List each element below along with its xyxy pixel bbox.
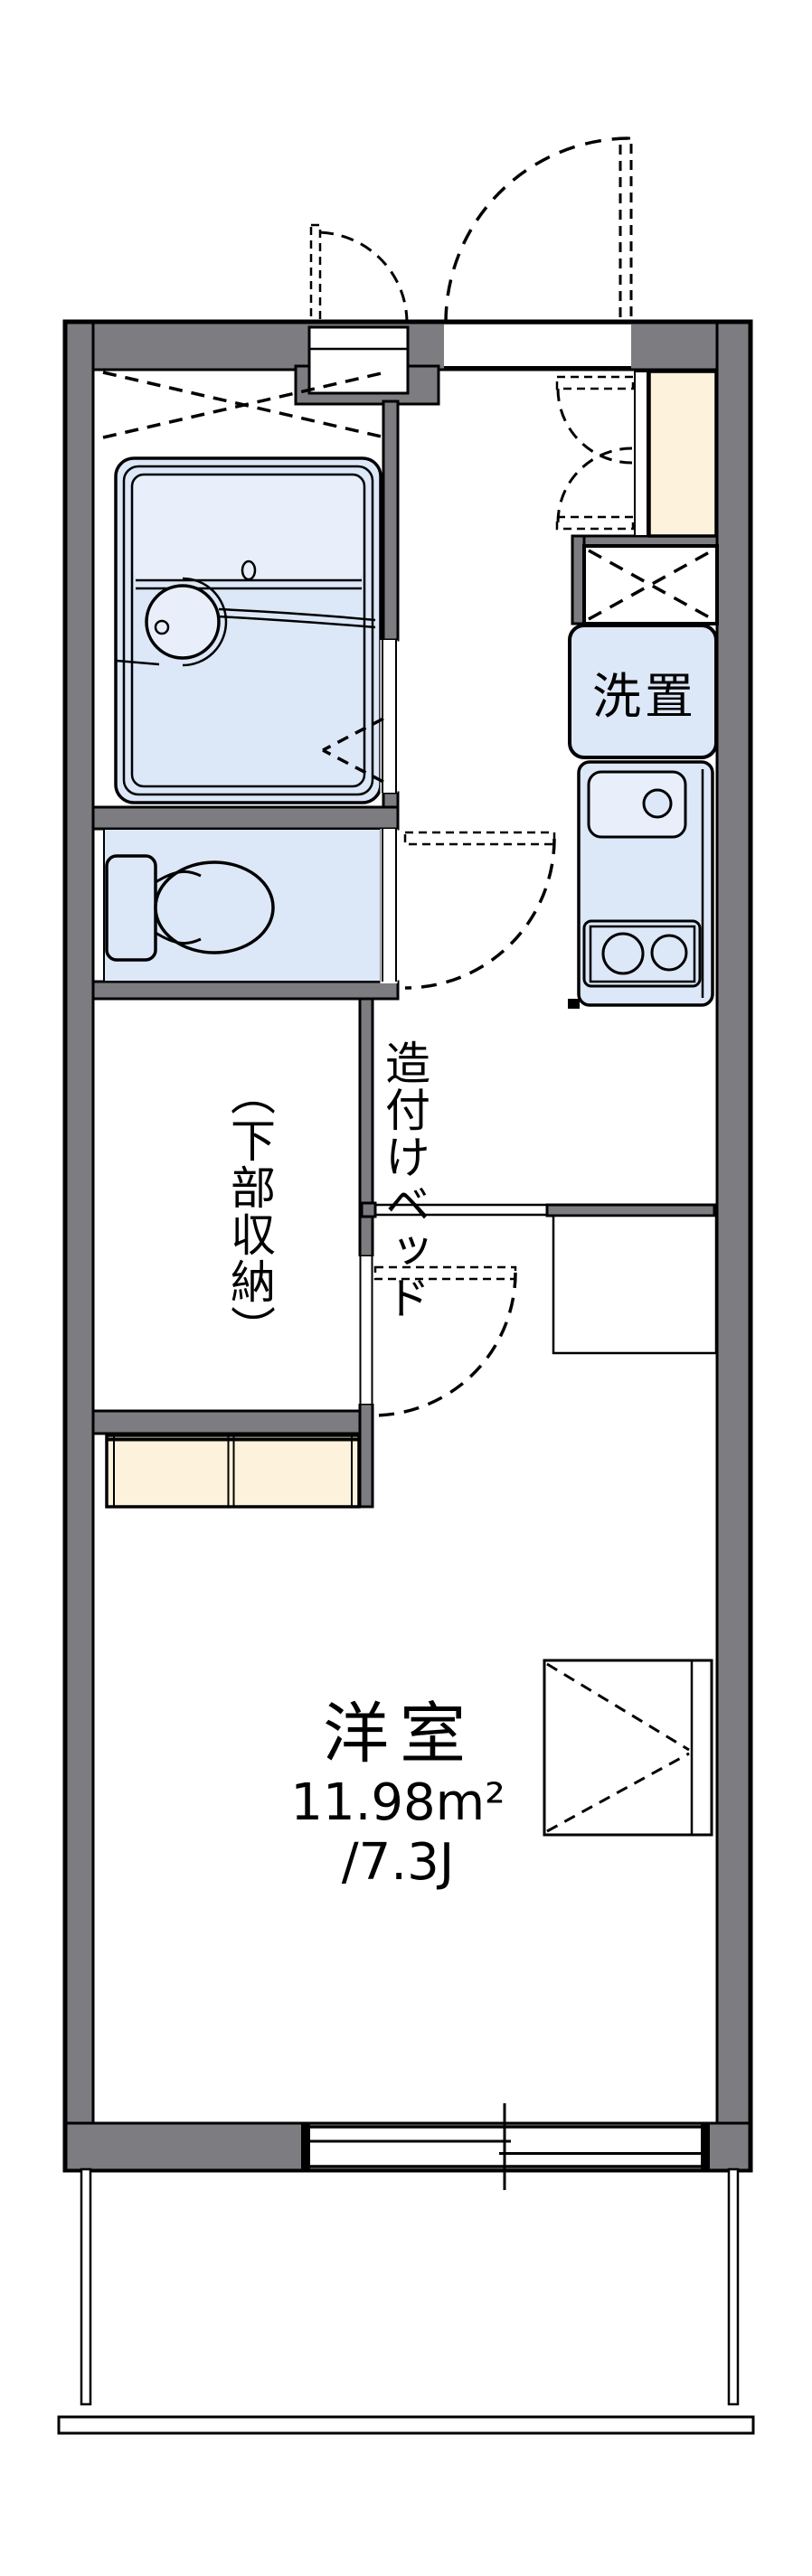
pipe-space-box [584, 546, 717, 624]
balcony [59, 2169, 753, 2433]
built-in-bed-label-sub: （下部収納） [223, 1039, 275, 1401]
meter-box-door-swing [311, 225, 407, 323]
room-area-label: 11.98m² [262, 1778, 533, 1829]
toilet-tank [107, 856, 156, 960]
bathtub [134, 476, 363, 588]
built-in-bed-label-main: 造付けベッド [378, 1039, 430, 1401]
kitchen-stove [584, 921, 700, 986]
entrance-opening [444, 324, 631, 369]
toilet-door-swing [381, 829, 555, 988]
room-closet [544, 1660, 712, 1835]
under-bed-storage [107, 1435, 359, 1507]
room-tatami-label: /7.3J [262, 1838, 533, 1888]
kitchen-sink [589, 772, 685, 837]
entrance-storage-doors [557, 377, 633, 529]
built-in-bed-label: 造付けベッド （下部収納） [172, 1039, 533, 1401]
meter-box-niche [309, 327, 408, 393]
toilet-room [104, 829, 381, 982]
room-name-label: 洋室 [299, 1701, 500, 1767]
floorplan-page: 洗置 造付けベッド （下部収納） 洋室 11.98m² /7.3J [0, 0, 812, 2576]
entrance-door-swing [446, 138, 631, 323]
washing-machine-label: 洗置 [570, 625, 716, 757]
drain-icon [242, 561, 255, 579]
shoe-cabinet [635, 371, 716, 536]
refrigerator-space [553, 1216, 716, 1353]
toilet-bowl [156, 862, 273, 953]
sliding-window [301, 2103, 710, 2190]
faucet-icon [644, 790, 671, 817]
